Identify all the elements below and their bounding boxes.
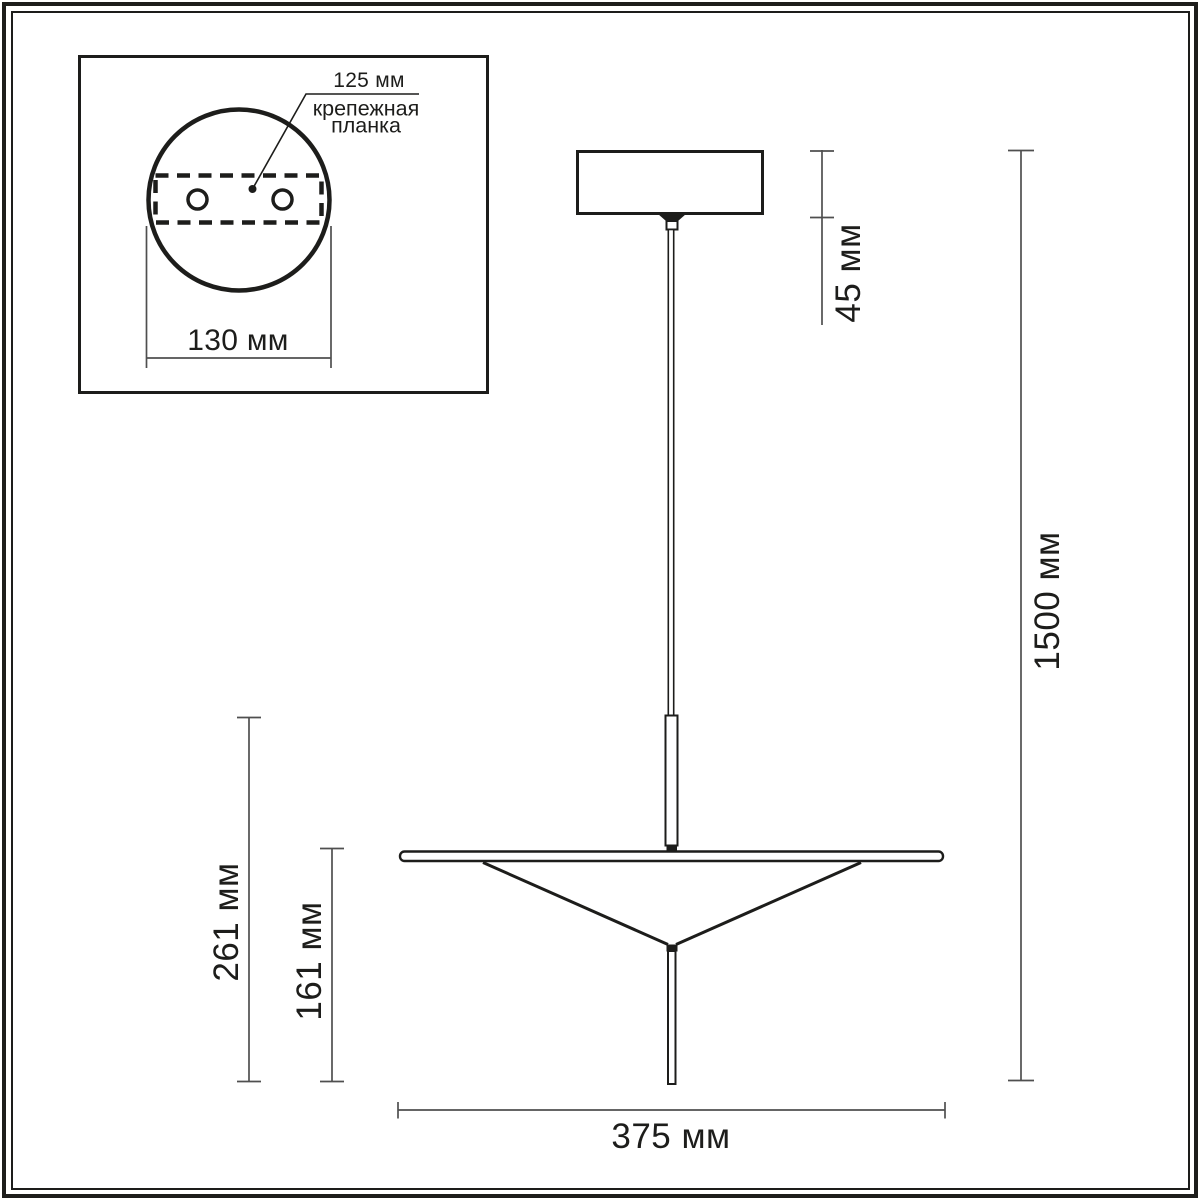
mounting-plate-label: крепежная планка: [313, 101, 420, 134]
overall-height-label: 1500 мм: [1028, 531, 1068, 670]
stem-tube: [666, 716, 678, 846]
shade-diameter-label: 375 мм: [611, 1117, 730, 1157]
canopy-cord-grip: [658, 214, 686, 221]
plate-offset-label: 125 мм: [333, 69, 405, 93]
technical-drawing: [0, 0, 1200, 1200]
diagram-canvas: 125 мм крепежная планка 130 мм 45 мм 150…: [0, 0, 1200, 1200]
canopy-height-label: 45 мм: [829, 223, 869, 322]
shade-assembly-height-label: 261 мм: [207, 862, 247, 981]
canopy-circle: [149, 110, 330, 291]
canopy-diameter-label: 130 мм: [187, 324, 288, 358]
cone-edge-left: [483, 863, 668, 945]
ceiling-canopy: [578, 152, 763, 214]
cord-connector: [667, 221, 678, 230]
bottom-rod: [668, 951, 676, 1084]
shade-height-label: 161 мм: [290, 901, 330, 1020]
shade-top-disc: [400, 852, 943, 862]
suspension-cord: [668, 230, 673, 716]
cone-edge-right: [676, 863, 861, 945]
